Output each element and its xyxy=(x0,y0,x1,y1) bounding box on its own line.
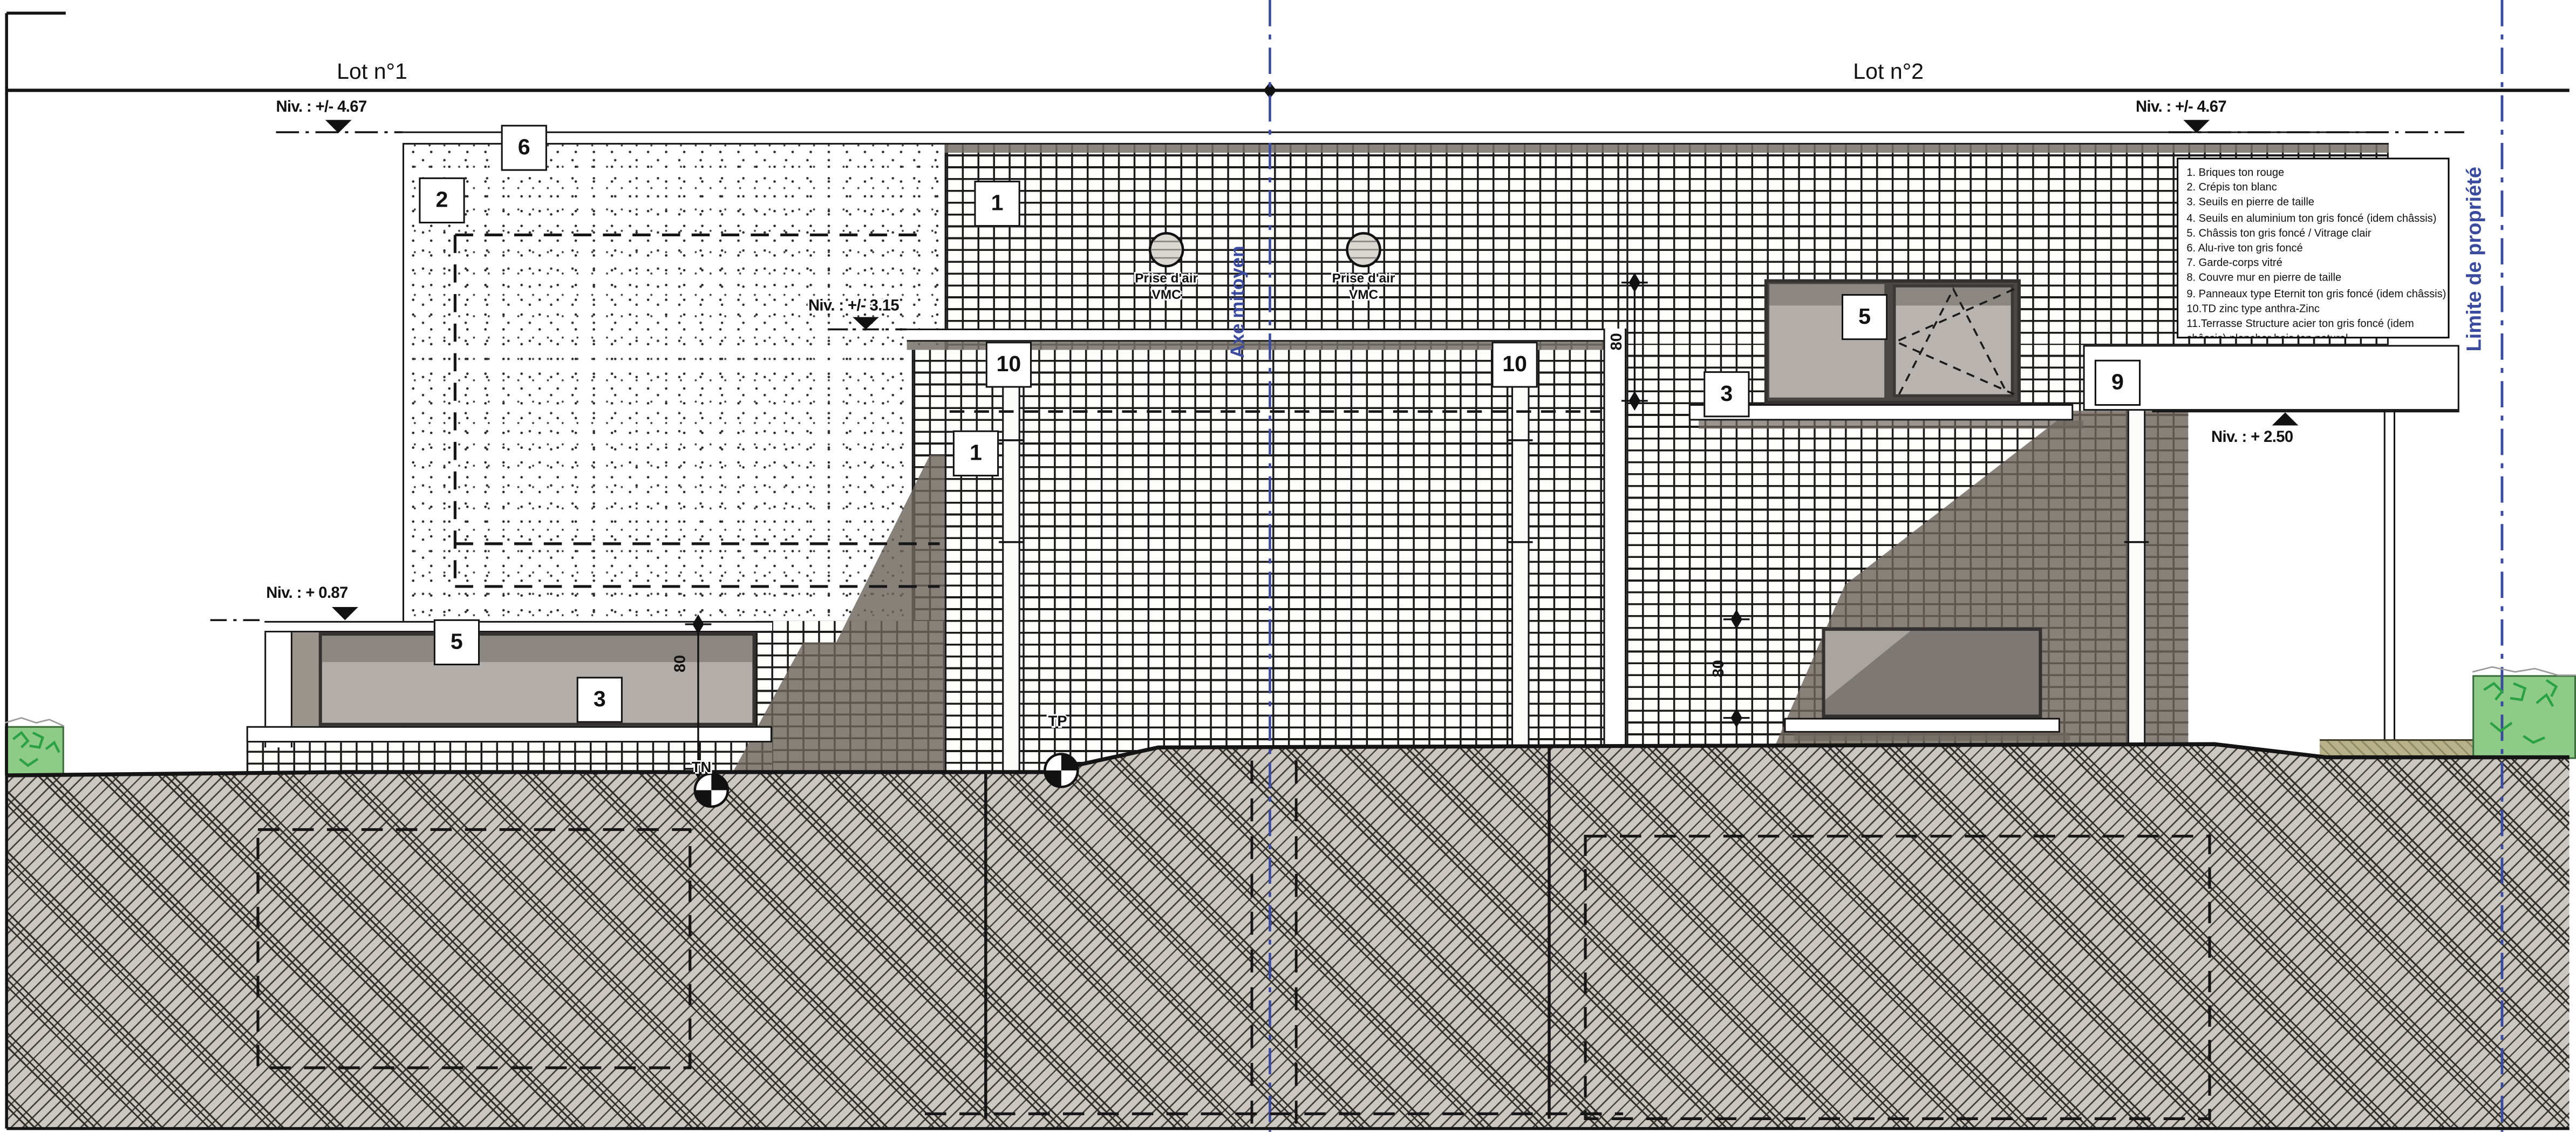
level-315-label: Niv. : +/- 3.15 xyxy=(808,297,899,315)
underground-left-outline xyxy=(258,830,690,1068)
legend-item: 11.Terrasse Structure acier ton gris fon… xyxy=(2186,317,2436,338)
legend-item: 1. Briques ton rouge xyxy=(2186,166,2448,181)
downpipe-collars xyxy=(999,440,2149,542)
vmc-label-left-line2: VMC xyxy=(1104,287,1229,302)
callout-seuil-upper: 3 xyxy=(1703,371,1749,417)
callout-crepis: 2 xyxy=(419,178,465,223)
vmc-vent-left xyxy=(1150,233,1183,266)
callout-panneaux: 9 xyxy=(2095,360,2141,406)
callout-alu-rive: 6 xyxy=(501,125,547,171)
callout-seuil-lower: 3 xyxy=(577,677,623,722)
materials-legend: 1. Briques ton rouge 2. Crépis ton blanc… xyxy=(2177,158,2449,338)
callout-chassis-upper: 5 xyxy=(1842,294,1887,340)
vmc-label-right-line1: Prise d'air xyxy=(1301,271,1426,287)
hidden-lines-lot1 xyxy=(455,235,939,587)
level-087-label: Niv. : + 0.87 xyxy=(266,585,347,603)
legend-item: 7. Garde-corps vitré xyxy=(2186,257,2448,272)
legend-item: 9. Panneaux type Eternit ton gris foncé … xyxy=(2186,287,2448,302)
legend-item: 5. Châssis ton gris foncé / Vitrage clai… xyxy=(2186,227,2448,242)
level-467-right-label: Niv. : +/- 4.67 xyxy=(2136,99,2226,117)
tn-marker-label: TN xyxy=(692,759,712,775)
dimension-left-window-text: 80 xyxy=(672,655,689,672)
tp-marker-icon xyxy=(1045,754,1078,787)
lot2-label: Lot n°2 xyxy=(1853,59,1924,84)
level-triangle-250 xyxy=(2272,412,2299,425)
underground-axis-walls xyxy=(1252,761,1296,1129)
vmc-label-right: Prise d'air VMC xyxy=(1301,271,1426,302)
underground-right-outline xyxy=(1585,836,2210,1119)
lot1-label: Lot n°1 xyxy=(337,59,407,84)
property-limit-label: Limite de propriété xyxy=(2463,138,2486,352)
tn-marker-icon xyxy=(695,774,728,807)
legend-item: 4. Seuils en aluminium ton gris foncé (i… xyxy=(2186,212,2448,227)
shrub-left-outline xyxy=(5,718,64,726)
level-triangle-467-right xyxy=(2183,120,2210,133)
legend-item: 3. Seuils en pierre de taille xyxy=(2186,196,2448,212)
callout-briques-mid: 1 xyxy=(953,431,999,476)
legend-item: 10.TD zinc type anthra-Zinc xyxy=(2186,302,2448,317)
tp-marker-label: TP xyxy=(1048,713,1067,729)
vmc-vent-right xyxy=(1347,233,1380,266)
shrub-left-foliage xyxy=(13,733,59,766)
terrain-line xyxy=(6,744,2570,775)
dimension-lower-window xyxy=(1723,610,1750,728)
dimension-lower-window-text: 80 xyxy=(1710,660,1727,677)
callout-briques-top: 1 xyxy=(974,181,1020,227)
shrub-right-foliage xyxy=(2484,680,2556,742)
shrub-right-outline xyxy=(2472,667,2576,675)
dimension-upper-window-text: 80 xyxy=(1608,333,1625,350)
level-triangle-087 xyxy=(332,607,358,620)
vmc-label-left-line1: Prise d'air xyxy=(1104,271,1229,287)
level-467-left-label: Niv. : +/- 4.67 xyxy=(276,99,366,117)
level-triangle-467-left xyxy=(325,120,352,133)
dimension-left-window xyxy=(685,615,712,779)
legend-item: 2. Crépis ton blanc xyxy=(2186,181,2448,196)
elevation-drawing: 80 80 80 xyxy=(0,0,2576,1132)
casement-opening-symbol xyxy=(1896,289,2014,394)
legend-item: 8. Couvre mur en pierre de taille xyxy=(2186,272,2448,287)
legend-item: 6. Alu-rive ton gris foncé xyxy=(2186,242,2448,257)
axis-party-wall-label: Axe mitoyen xyxy=(1229,194,1249,358)
dimension-upper-window xyxy=(1621,272,1648,411)
underground-mid-walls xyxy=(986,747,1549,1119)
level-triangle-315 xyxy=(853,317,879,330)
callout-td-left: 10 xyxy=(986,342,1032,387)
vmc-label-right-line2: VMC xyxy=(1301,287,1426,302)
callout-td-right: 10 xyxy=(1491,342,1537,387)
vmc-label-left: Prise d'air VMC xyxy=(1104,271,1229,302)
callout-chassis-lower: 5 xyxy=(434,619,480,665)
level-250-label: Niv. : + 2.50 xyxy=(2211,429,2293,447)
